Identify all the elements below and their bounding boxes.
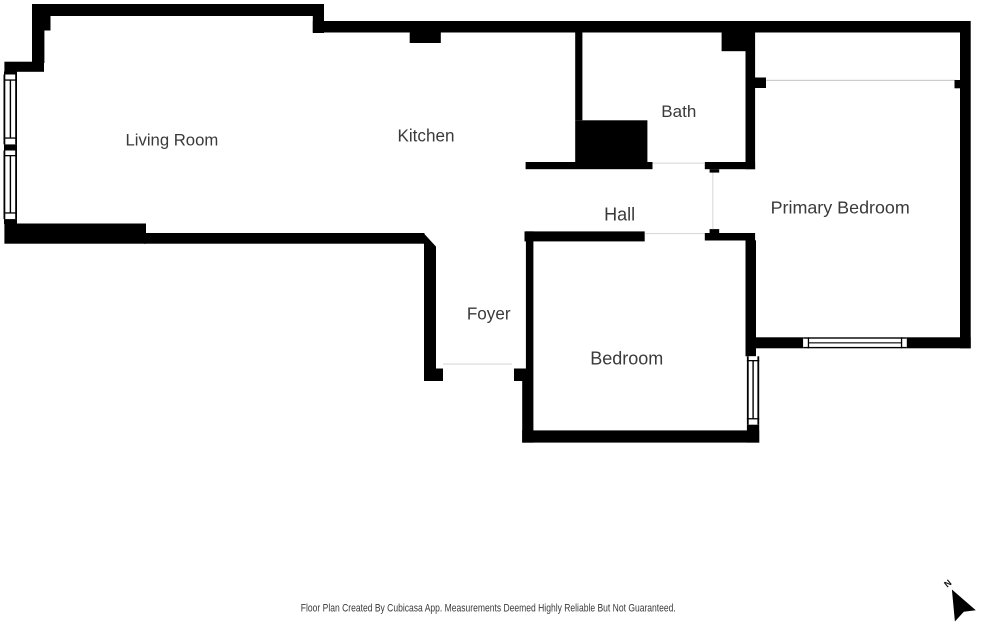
- svg-text:Primary Bedroom: Primary Bedroom: [771, 198, 910, 218]
- svg-text:Bedroom: Bedroom: [590, 349, 663, 369]
- svg-text:Foyer: Foyer: [467, 305, 511, 324]
- svg-text:Kitchen: Kitchen: [397, 127, 454, 146]
- svg-text:Living Room: Living Room: [126, 131, 219, 150]
- svg-text:Floor Plan Created By Cubicasa: Floor Plan Created By Cubicasa App. Meas…: [301, 602, 676, 614]
- svg-text:Bath: Bath: [661, 102, 696, 121]
- svg-text:Hall: Hall: [604, 205, 635, 225]
